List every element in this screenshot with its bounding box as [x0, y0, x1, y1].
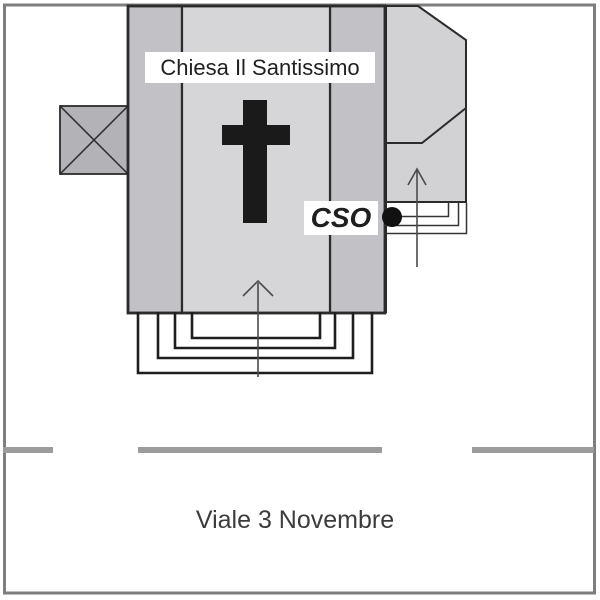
cross-vertical-bar — [243, 100, 267, 223]
front-step-inner — [192, 312, 320, 338]
street-dash — [138, 447, 382, 453]
street-dash — [3, 447, 53, 453]
front-step-2 — [175, 312, 335, 348]
cso-location-dot-icon — [382, 207, 402, 227]
church-apse-annex — [386, 6, 467, 313]
church-name-label: Chiesa Il Santissimo — [145, 52, 375, 83]
cross-horizontal-bar — [222, 125, 290, 145]
street-centerline — [3, 447, 594, 453]
front-steps — [138, 312, 372, 373]
street-dash — [472, 447, 594, 453]
cso-label: CSO — [304, 201, 378, 235]
apse-shape — [386, 6, 466, 202]
front-step-3 — [158, 312, 353, 358]
front-step-outer — [138, 312, 372, 373]
side-step-inner — [400, 203, 449, 217]
street-name-label: Viale 3 Novembre — [150, 505, 440, 535]
map-page: Chiesa Il Santissimo CSO Viale 3 Novembr… — [0, 0, 600, 600]
crossed-square-annex — [60, 106, 128, 174]
